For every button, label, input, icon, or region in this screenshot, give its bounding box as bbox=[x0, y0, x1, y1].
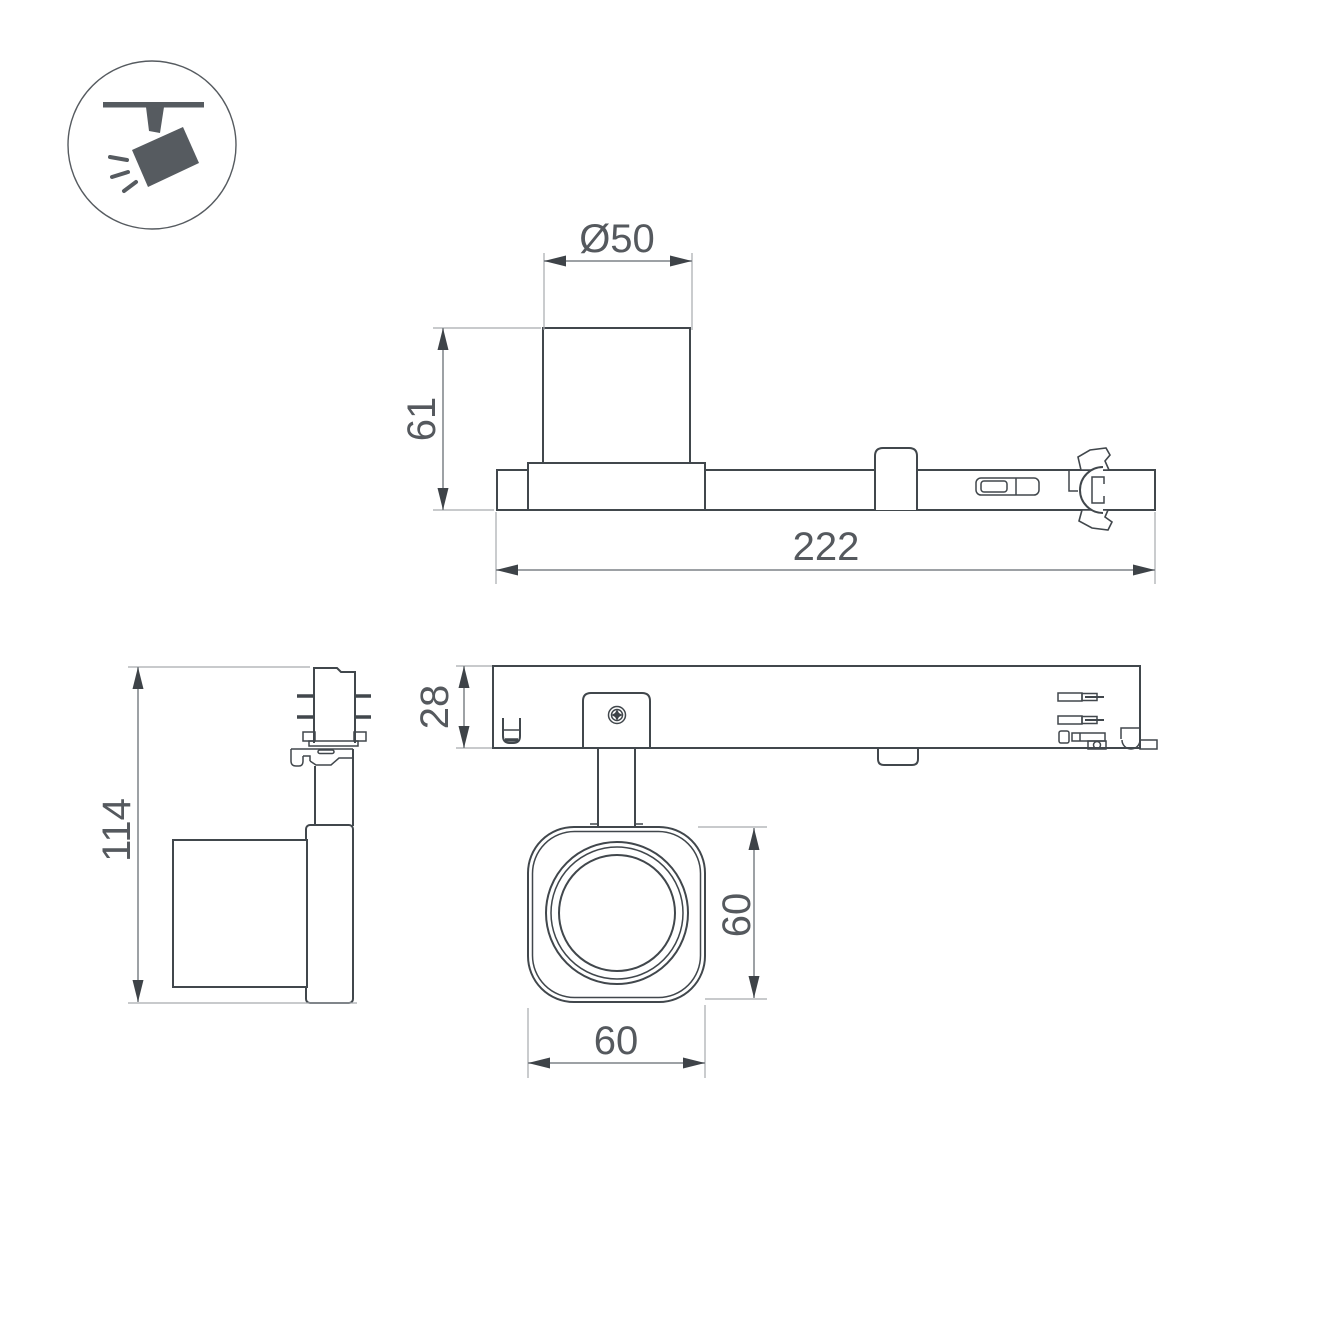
track-adapter bbox=[314, 668, 355, 743]
lamp-head-square bbox=[173, 840, 307, 987]
dim-label-face-height: 60 bbox=[715, 893, 759, 938]
latch-flipper-top bbox=[1078, 448, 1110, 470]
mount-hook bbox=[291, 749, 353, 766]
dim-track-height: 28 bbox=[413, 666, 492, 748]
adapter-plate bbox=[309, 741, 358, 746]
dim-label-total-height: 114 bbox=[95, 798, 139, 862]
latch-flipper-bottom bbox=[1079, 510, 1112, 530]
view-front-elevation: 114 bbox=[95, 667, 371, 1003]
view-lamp-face: 60 60 bbox=[528, 827, 767, 1078]
end-foot bbox=[1140, 740, 1157, 749]
hook-slot bbox=[318, 750, 334, 754]
view-track-body: 28 bbox=[413, 666, 1157, 826]
dim-face-height: 60 bbox=[698, 827, 767, 999]
lamp-body bbox=[306, 825, 353, 1003]
lamp-face-outline bbox=[528, 827, 705, 1002]
dim-face-width: 60 bbox=[528, 1005, 705, 1078]
dim-head-diameter: Ø50 bbox=[544, 217, 692, 330]
dim-label-head-diameter: Ø50 bbox=[579, 217, 655, 261]
dim-label-face-width: 60 bbox=[594, 1019, 639, 1063]
contact-pins bbox=[297, 696, 371, 717]
dim-label-head-height: 61 bbox=[400, 397, 444, 442]
icon-ceiling-bar bbox=[103, 102, 204, 108]
dim-label-track-height: 28 bbox=[413, 685, 457, 730]
view-side-elevation: Ø50 61 222 bbox=[400, 217, 1155, 584]
screw bbox=[609, 707, 626, 724]
dimension-drawing: Ø50 61 222 bbox=[0, 0, 1331, 1331]
lamp-base bbox=[528, 463, 705, 510]
drawing-canvas: Ø50 61 222 bbox=[0, 0, 1331, 1331]
dim-total-length: 222 bbox=[496, 512, 1155, 584]
track-body bbox=[493, 666, 1140, 748]
track-spotlight-icon bbox=[68, 61, 236, 229]
mount-tab bbox=[875, 448, 917, 510]
hanging-tab bbox=[878, 748, 918, 765]
lamp-cylinder bbox=[543, 328, 690, 463]
dim-label-total-length: 222 bbox=[793, 525, 860, 569]
